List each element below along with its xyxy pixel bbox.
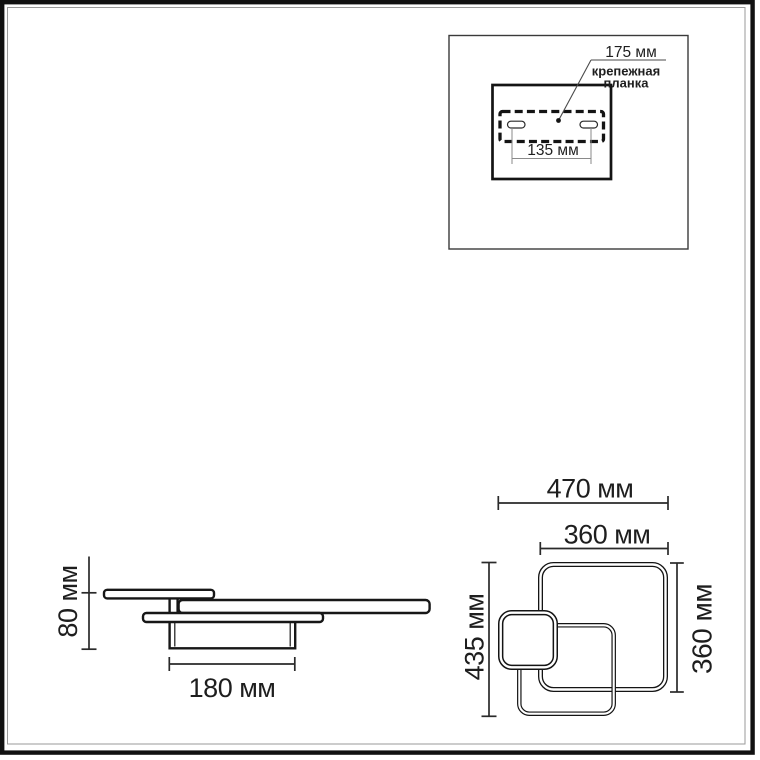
label-175mm: 175 мм [605,44,656,61]
lamp-side-view: 80 мм 180 мм [53,557,430,704]
mounting-plate-inset: 175 мм крепежная планка 135 мм [449,36,688,250]
lamp-front-view: 470 мм 360 мм 435 мм 360 мм [460,474,718,717]
screw-slot-right [580,121,598,128]
leader-dot [556,118,561,123]
side-middle-bar [143,613,323,622]
label-360mm-right: 360 мм [687,584,718,674]
label-360mm-top: 360 мм [564,520,651,550]
label-bracket-line2: планка [604,76,650,91]
label-80mm: 80 мм [53,565,83,637]
label-435mm: 435 мм [460,594,490,681]
label-135mm: 135 мм [527,142,578,159]
side-canopy-base [170,622,296,649]
label-180mm: 180 мм [189,673,276,703]
side-long-bar [179,600,430,613]
small-square-frame-outer [501,613,556,668]
side-top-plate [104,590,214,599]
lamp-dimension-drawing: 175 мм крепежная планка 135 мм 80 мм 180… [0,0,760,760]
label-470mm: 470 мм [547,474,634,504]
screw-slot-left [508,121,526,128]
